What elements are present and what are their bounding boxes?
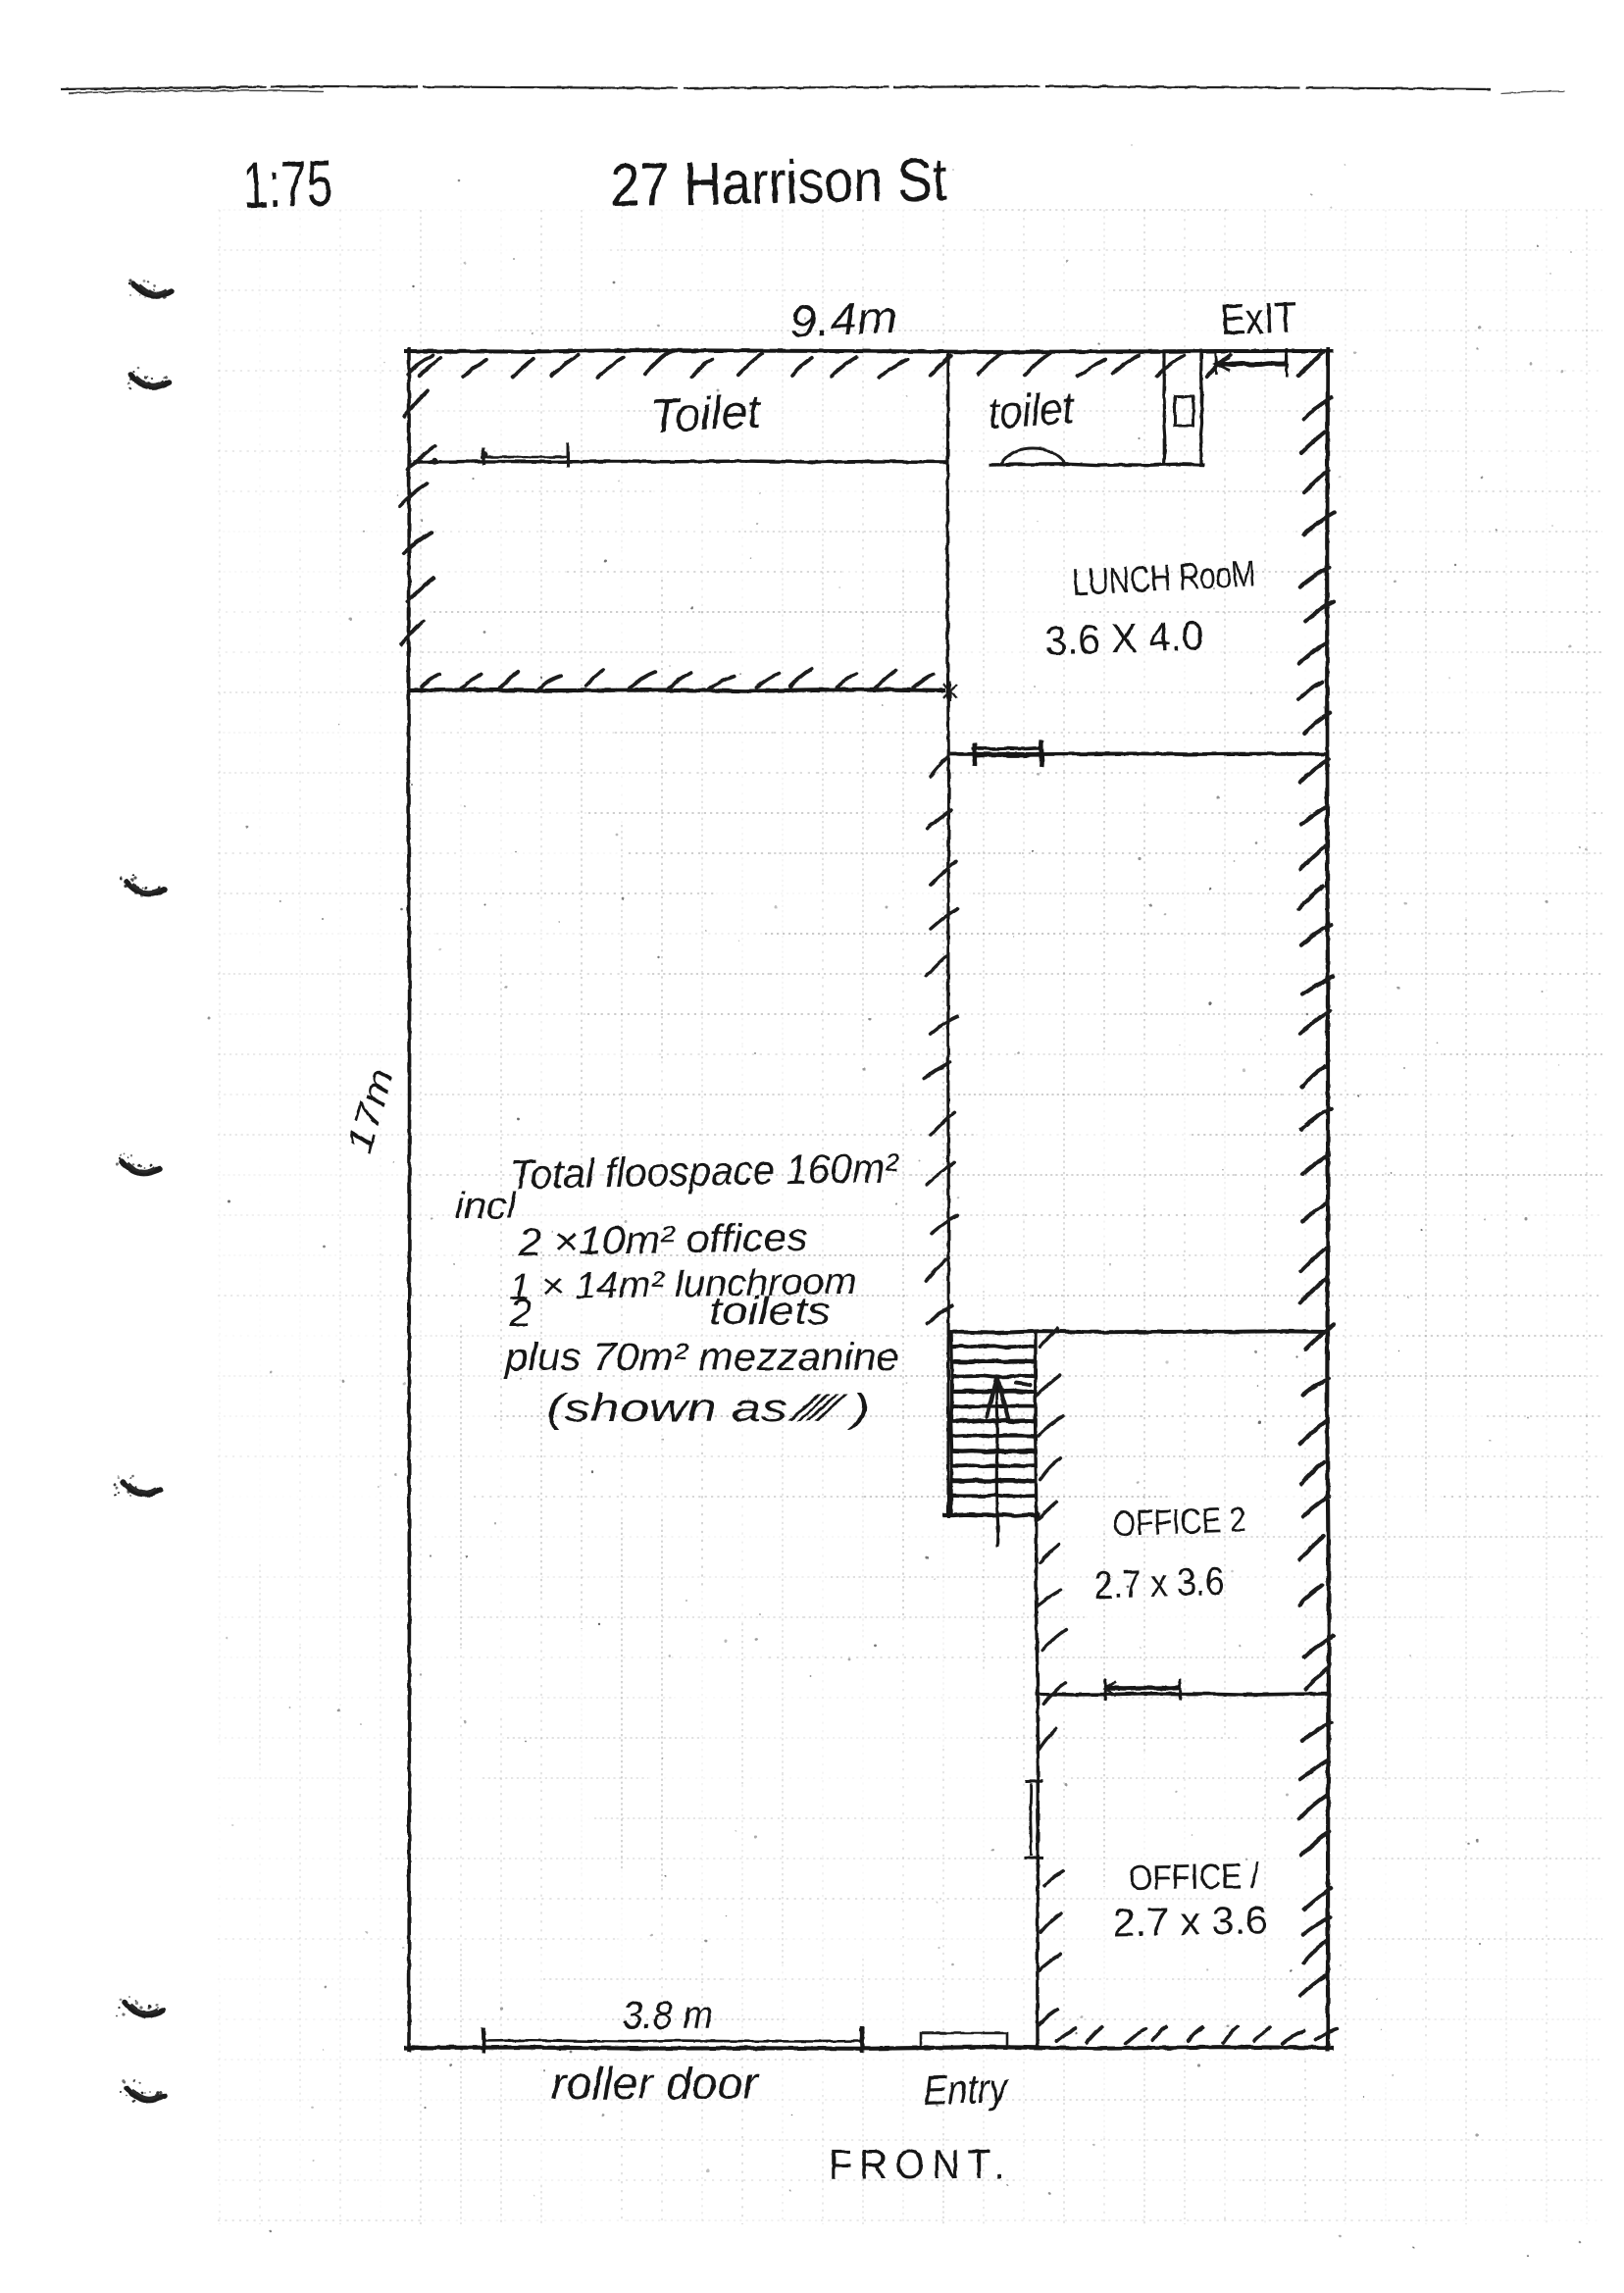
svg-text:2: 2 [509, 1292, 532, 1335]
svg-text:27 Harrison St: 27 Harrison St [610, 146, 947, 220]
svg-text:toilets: toilets [709, 1290, 831, 1333]
svg-text:1:75: 1:75 [241, 146, 334, 222]
svg-text:roller door: roller door [551, 2058, 760, 2109]
svg-text:FRONT.: FRONT. [829, 2141, 1012, 2187]
svg-text:(shown as ⁄⁄⁄⁄ ): (shown as ⁄⁄⁄⁄ ) [546, 1387, 870, 1430]
svg-text:toilet: toilet [987, 382, 1077, 438]
svg-text:2.7 x 3.6: 2.7 x 3.6 [1093, 1559, 1225, 1607]
svg-text:9.4m: 9.4m [788, 290, 899, 347]
svg-text:plus 70m² mezzanine: plus 70m² mezzanine [504, 1336, 899, 1379]
svg-text:Total floospace 160m²: Total floospace 160m² [509, 1145, 900, 1197]
svg-text:2 ×10m² offices: 2 ×10m² offices [517, 1216, 808, 1264]
svg-text:Entry: Entry [923, 2064, 1011, 2114]
svg-text:OFFICE 2: OFFICE 2 [1112, 1499, 1246, 1544]
svg-text:Toilet: Toilet [649, 385, 763, 443]
svg-text:ExIT: ExIT [1220, 293, 1298, 344]
svg-text:incl: incl [455, 1186, 518, 1227]
svg-text:OFFICE /: OFFICE / [1128, 1856, 1259, 1898]
svg-text:3.8 m: 3.8 m [623, 1994, 713, 2037]
svg-text:2.7 x 3.6: 2.7 x 3.6 [1112, 1899, 1268, 1945]
svg-text:3.6 X 4.0: 3.6 X 4.0 [1044, 612, 1205, 664]
